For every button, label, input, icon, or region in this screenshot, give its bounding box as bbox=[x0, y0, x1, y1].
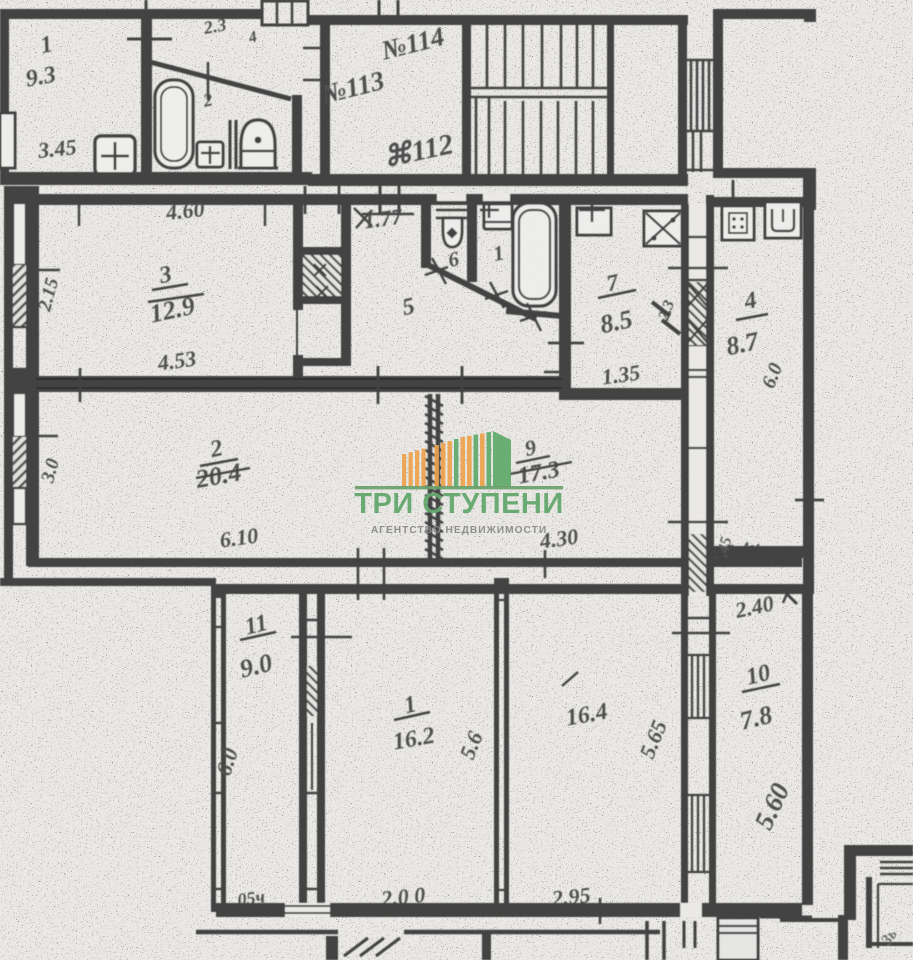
svg-text:ТРИ СТУПЕНИ: ТРИ СТУПЕНИ bbox=[354, 488, 563, 520]
svg-text:АГЕНТСТВО НЕДВИЖИМОСТИ: АГЕНТСТВО НЕДВИЖИМОСТИ bbox=[371, 525, 547, 536]
svg-text:6.10: 6.10 bbox=[218, 523, 260, 553]
svg-text:2.3: 2.3 bbox=[201, 14, 228, 38]
svg-text:1.35: 1.35 bbox=[600, 360, 642, 390]
svg-text:4.60: 4.60 bbox=[164, 196, 206, 225]
svg-text:3.45: 3.45 bbox=[36, 134, 78, 163]
svg-text:9.3: 9.3 bbox=[24, 62, 58, 93]
